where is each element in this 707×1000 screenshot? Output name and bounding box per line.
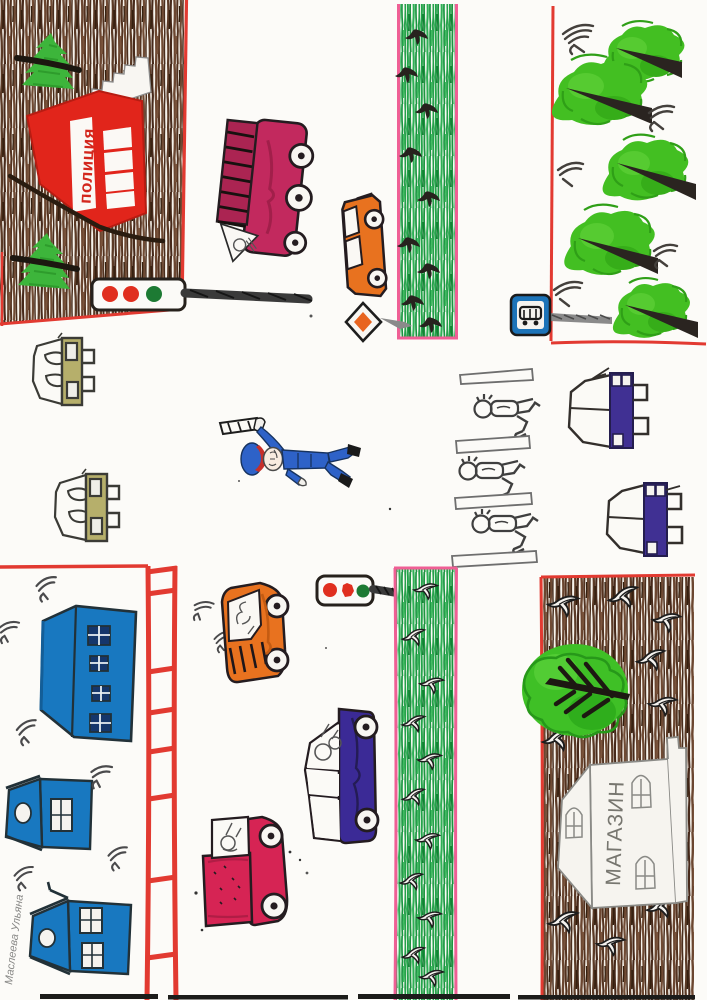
svg-text:МАГАЗИН: МАГАЗИН — [602, 780, 629, 886]
svg-text:полиция: полиция — [76, 128, 99, 205]
